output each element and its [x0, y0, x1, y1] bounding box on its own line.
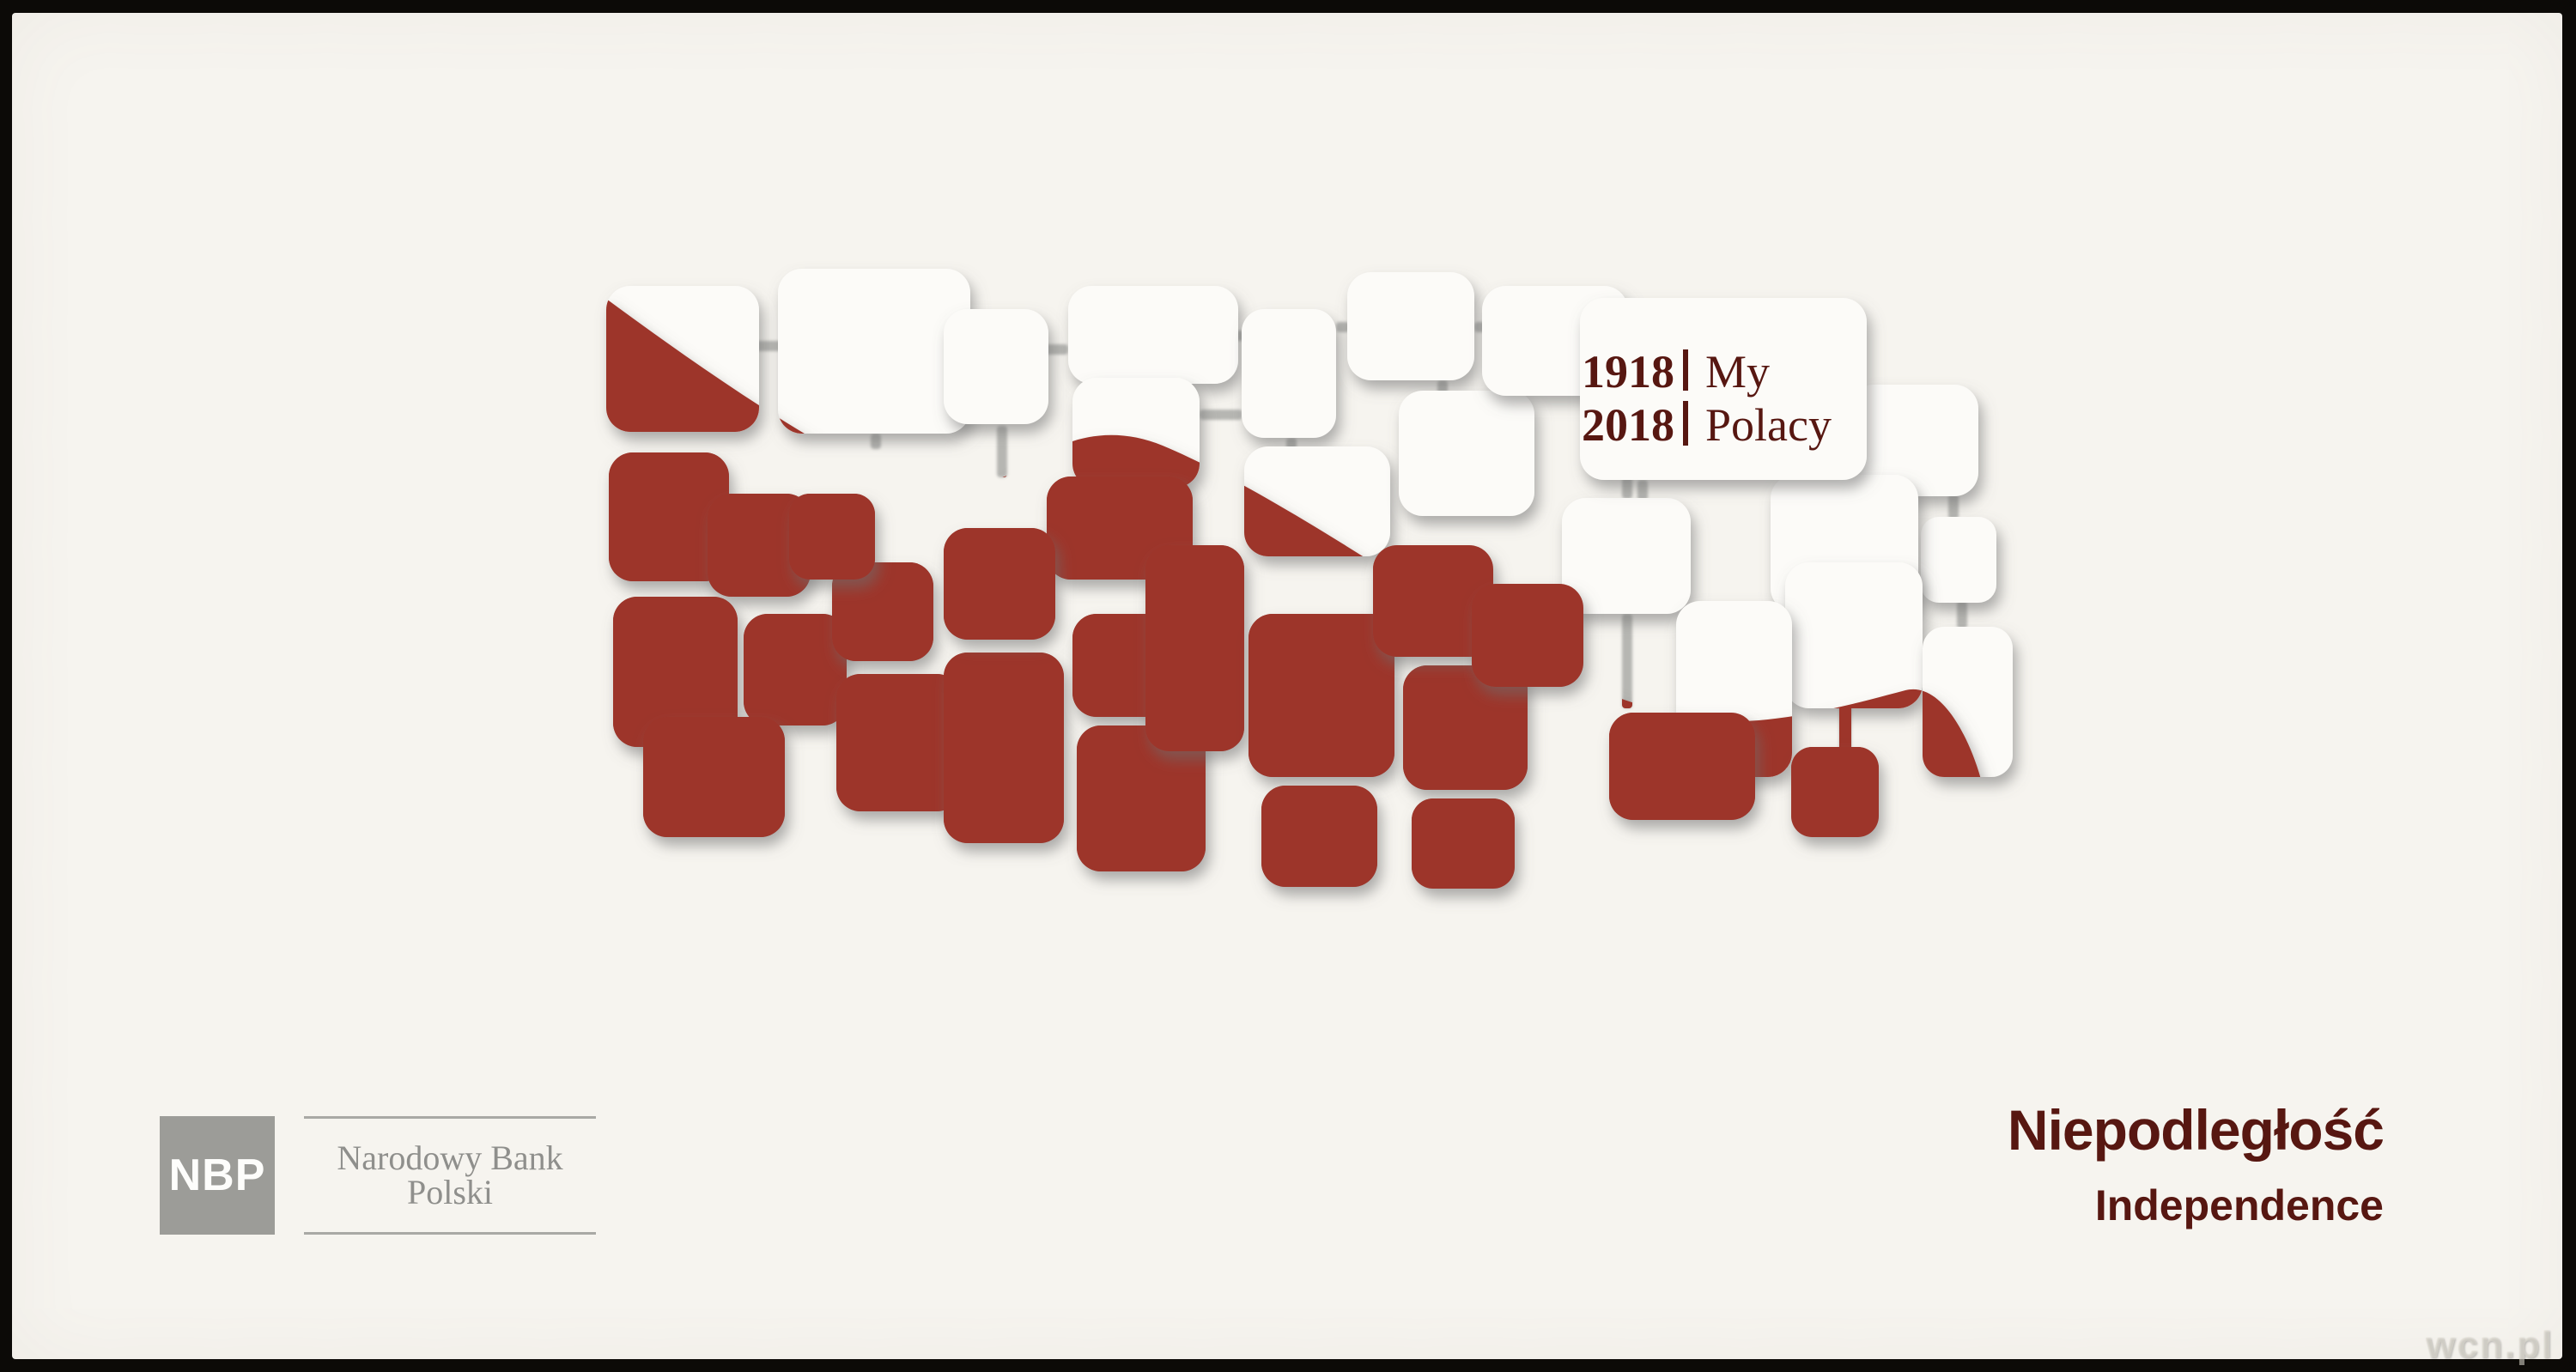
badge-divider-top: [1683, 349, 1688, 391]
badge-label-bottom: Polacy: [1705, 399, 1832, 451]
watermark-text: wcn.pl: [2426, 1324, 2554, 1367]
nbp-logo: NBP: [160, 1116, 275, 1235]
badge-year-top: 1918: [1582, 346, 1674, 398]
badge-year-bottom: 2018: [1582, 399, 1674, 451]
photo-background: 1918 2018 My Polacy NBP Narodowy Bank Po…: [0, 0, 2576, 1372]
title-english: Independence: [2008, 1184, 2384, 1227]
folder-cover: 1918 2018 My Polacy NBP Narodowy Bank Po…: [12, 13, 2562, 1359]
nbp-logo-block: NBP Narodowy Bank Polski: [160, 1116, 596, 1235]
mosaic-tiles: [603, 269, 2013, 920]
badge-divider-bottom: [1683, 401, 1688, 446]
nbp-logo-letters: NBP: [169, 1150, 266, 1201]
nbp-name-block: Narodowy Bank Polski: [304, 1116, 596, 1235]
nbp-bank-name: Narodowy Bank Polski: [304, 1141, 596, 1210]
badge-label-top: My: [1705, 346, 1770, 398]
title-polish: Niepodległość: [2008, 1102, 2384, 1158]
nbp-rule-top: [304, 1116, 596, 1119]
cover-titles: Niepodległość Independence: [2008, 1102, 2384, 1227]
nbp-rule-bottom: [304, 1232, 596, 1235]
